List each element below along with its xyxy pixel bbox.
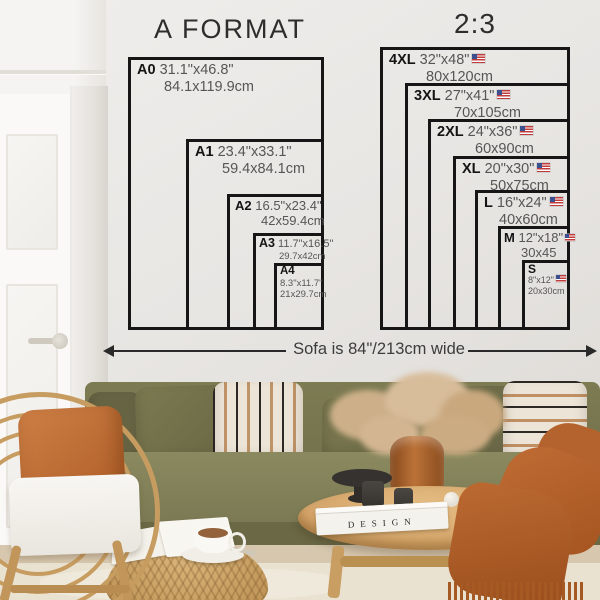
door-panel [6,134,58,250]
label-a2: A2 16.5"x23.4" 42x59.4cm [235,198,325,229]
a-format-title: A FORMAT [125,14,335,45]
label-l: L 16"x24" 40x60cm [484,195,563,229]
width-arrow-line [468,350,592,352]
us-flag-icon [550,197,563,206]
us-flag-icon [556,275,566,282]
size-guide-image: DESIGN A FORMAT 2:3 A0 31.1"x46.8" 84.1x… [0,0,600,600]
sofa-width-note: Sofa is 84"/213cm wide [288,340,470,359]
ratio-2-3-title: 2:3 [430,8,520,40]
label-a0: A0 31.1"x46.8" 84.1x119.9cm [137,62,254,96]
candle-holder [362,481,384,507]
coffee-surface [198,528,228,538]
label-xl: XL 20"x30" 50x75cm [462,161,550,195]
us-flag-icon [497,90,510,99]
label-4xl: 4XL 32"x48" 80x120cm [389,52,493,86]
cup-handle [228,532,246,552]
label-a4: A4 8.3"x11.7" 21x29.7cm [280,266,326,301]
us-flag-icon [472,54,485,63]
throw-fringe [448,582,583,600]
label-m: M 12"x18" 30x45 [504,230,575,261]
door-handle-rosette [52,333,68,349]
width-arrow-line [112,350,286,352]
chair-rail [10,585,130,593]
label-s: S 8"x12" 20x30cm [528,263,566,298]
us-flag-icon [565,234,575,241]
us-flag-icon [537,163,550,172]
label-3xl: 3XL 27"x41" 70x105cm [414,88,521,122]
arrow-right-icon [586,345,597,357]
us-flag-icon [520,126,533,135]
label-a1: A1 23.4"x33.1" 59.4x84.1cm [195,144,305,178]
wall-molding [0,70,106,74]
label-a3: A3 11.7"x16.5" 29.7x42cm [259,236,333,262]
label-2xl: 2XL 24"x36" 60x90cm [437,124,534,158]
